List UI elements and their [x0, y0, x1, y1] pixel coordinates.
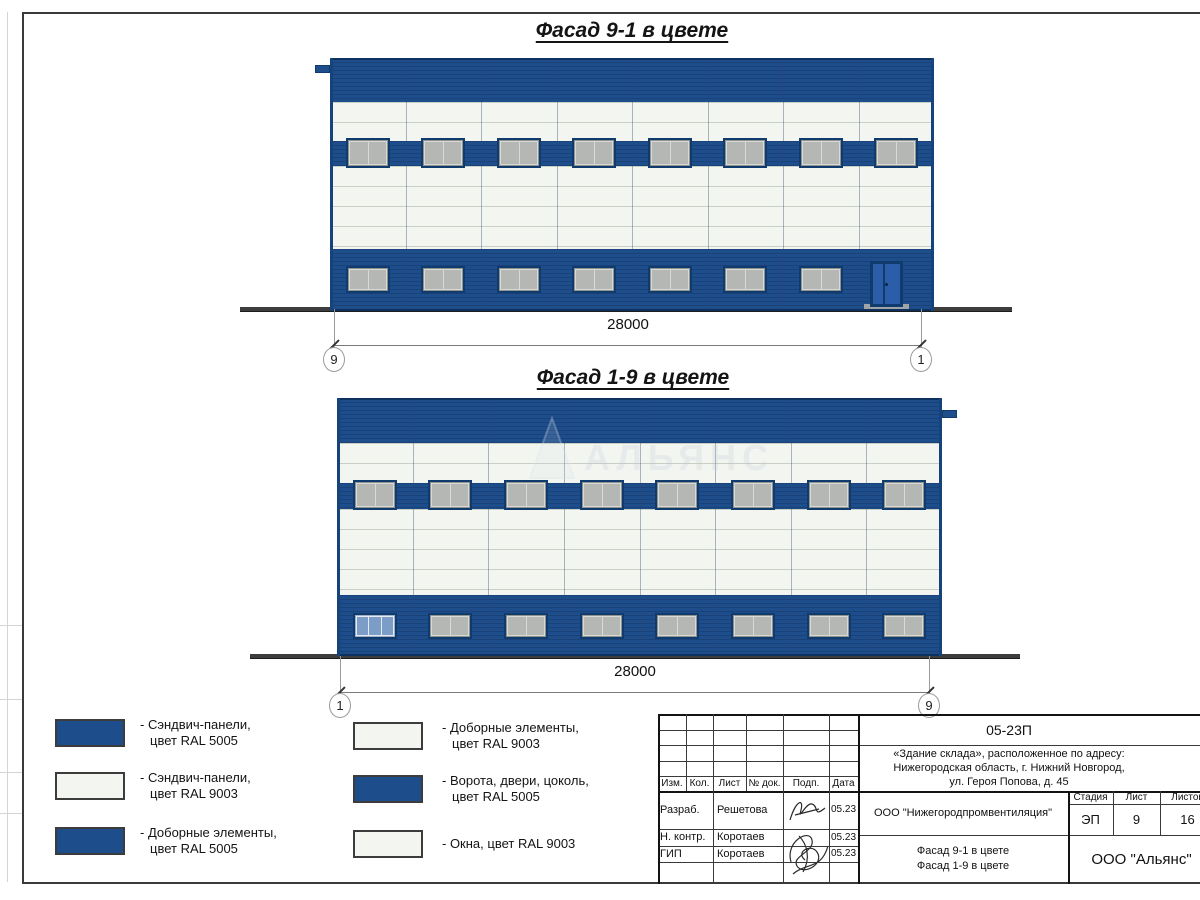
corner-edge — [330, 58, 333, 311]
window — [874, 138, 918, 168]
window-pane — [822, 270, 840, 289]
stage-value-cell: ЭП — [1068, 804, 1113, 835]
legend-label-line: - Ворота, двери, цоколь, — [442, 773, 657, 789]
window — [353, 613, 397, 639]
facade-9-1-drawing — [330, 58, 934, 311]
window-pane — [501, 142, 519, 164]
window — [580, 480, 624, 510]
window — [731, 480, 775, 510]
margin-divider — [0, 772, 22, 773]
window-pane — [746, 270, 764, 289]
window-pane — [584, 617, 602, 635]
titleblock-line — [858, 714, 860, 884]
window-pane — [671, 270, 689, 289]
margin-divider — [0, 813, 22, 814]
signature-icon — [786, 794, 828, 828]
facade1-title: Фасад 9-1 в цвете — [432, 19, 832, 43]
frame-top — [22, 12, 1200, 14]
sig-header-cell: Дата — [829, 777, 858, 791]
window-pane — [451, 484, 469, 506]
window-glazing — [574, 140, 614, 166]
window-pane — [603, 484, 621, 506]
window-pane — [905, 484, 923, 506]
titleblock-line — [783, 714, 784, 884]
window-pane — [822, 142, 840, 164]
window-pane — [576, 270, 594, 289]
window — [428, 480, 472, 510]
window-glazing — [657, 615, 697, 637]
panel-joint-line — [557, 58, 558, 311]
sig-header-cell: Лист — [713, 777, 746, 791]
window-pane — [369, 617, 380, 635]
window-pane — [803, 142, 821, 164]
window-pane — [897, 142, 915, 164]
sig-name-cell: Коротаев — [717, 829, 781, 846]
window-pane — [811, 484, 829, 506]
frame-left — [22, 12, 24, 884]
panel-joint-line — [783, 58, 784, 311]
window-pane — [754, 484, 772, 506]
titleblock-line — [658, 862, 858, 863]
window — [648, 266, 692, 293]
margin-divider — [0, 699, 22, 700]
window-glazing — [348, 268, 388, 291]
window — [807, 613, 851, 639]
panel-joint-line — [413, 398, 414, 656]
titleblock-line — [658, 730, 858, 731]
window — [723, 266, 767, 293]
legend-swatch — [55, 827, 125, 855]
window-pane — [357, 617, 368, 635]
panel-joint-line — [640, 398, 641, 656]
door-handle-icon — [885, 283, 888, 286]
window-pane — [671, 142, 689, 164]
window-pane — [369, 142, 387, 164]
window-pane — [595, 270, 613, 289]
window — [421, 138, 465, 168]
sig-role-cell: ГИП — [660, 846, 712, 862]
window — [346, 138, 390, 168]
window — [655, 613, 699, 639]
panel-joint-line — [859, 58, 860, 311]
window-pane — [369, 270, 387, 289]
window — [723, 138, 767, 168]
legend-label: - Доборные элементы,цвет RAL 5005 — [140, 826, 355, 856]
stage-value-cell: 16 — [1160, 804, 1200, 835]
axis-marker: 9 — [323, 347, 345, 372]
legend-label-line: цвет RAL 5005 — [150, 841, 355, 857]
panel-joint-line — [715, 398, 716, 656]
stage-header-cell: Лист — [1113, 792, 1160, 804]
sig-date-cell: 05.23 — [829, 791, 858, 829]
window — [655, 480, 699, 510]
window — [346, 266, 390, 293]
stage-header-cell: Листов — [1160, 792, 1200, 804]
project-address-line: «Здание склада», расположенное по адресу… — [858, 747, 1160, 761]
window-pane — [830, 484, 848, 506]
window-glazing — [423, 268, 463, 291]
window-pane — [501, 270, 519, 289]
margin-inner-line — [7, 12, 8, 882]
window-pane — [754, 617, 772, 635]
panel-joint-line — [866, 398, 867, 656]
window-pane — [659, 484, 677, 506]
window-pane — [425, 270, 443, 289]
sig-header-cell: Изм. — [658, 777, 686, 791]
window-pane — [508, 484, 526, 506]
window-pane — [811, 617, 829, 635]
window-pane — [678, 617, 696, 635]
legend-swatch — [353, 775, 423, 803]
window-pane — [425, 142, 443, 164]
window — [882, 480, 926, 510]
window-pane — [357, 484, 375, 506]
window-pane — [595, 142, 613, 164]
org-name: ООО "Нижегородпромвентиляция" — [858, 791, 1068, 835]
window-pane — [444, 270, 462, 289]
window-pane — [905, 617, 923, 635]
window-pane — [350, 142, 368, 164]
sheet-doc-title-line: Фасад 9-1 в цвете — [917, 844, 1009, 859]
facade-1-9-drawing: АЛЬЯНС — [337, 398, 942, 656]
sig-role-cell: Н. контр. — [660, 829, 712, 846]
window — [572, 138, 616, 168]
window — [731, 613, 775, 639]
window-pane — [878, 142, 896, 164]
sheet-doc-title: Фасад 9-1 в цвете Фасад 1-9 в цвете — [858, 835, 1068, 883]
window-glazing — [423, 140, 463, 166]
company-name: ООО "Альянс" — [1068, 835, 1200, 883]
dimension-line — [340, 692, 929, 693]
legend-swatch — [353, 830, 423, 858]
legend-label-line: - Окна, цвет RAL 9003 — [442, 836, 657, 852]
corner-edge — [931, 58, 934, 311]
window-pane — [746, 142, 764, 164]
legend-label: - Сэндвич-панели,цвет RAL 9003 — [140, 771, 355, 801]
legend-label-line: цвет RAL 9003 — [150, 786, 355, 802]
window-pane — [527, 617, 545, 635]
titleblock-line — [713, 714, 714, 884]
sig-name-cell: Коротаев — [717, 846, 781, 862]
window-glazing — [801, 140, 841, 166]
window-pane — [584, 484, 602, 506]
window — [807, 480, 851, 510]
window — [504, 480, 548, 510]
legend-label-line: - Доборные элементы, — [442, 720, 657, 736]
panel-joint-line — [481, 58, 482, 311]
titleblock-line — [858, 835, 1200, 836]
sheet-doc-title-line: Фасад 1-9 в цвете — [917, 859, 1009, 874]
stage-header-cell: Стадия — [1068, 792, 1113, 804]
window — [648, 138, 692, 168]
legend-label: - Доборные элементы,цвет RAL 9003 — [442, 721, 657, 751]
window — [497, 266, 541, 293]
entrance-door — [870, 261, 903, 307]
window-glazing — [355, 482, 395, 508]
titleblock-line — [658, 745, 1200, 746]
drawing-sheet: Фасад 9-1 в цвете Фасад 1-9 в цвете АЛЬЯ… — [0, 0, 1200, 900]
sig-date-cell: 05.23 — [829, 829, 858, 846]
legend-label-line: - Доборные элементы, — [140, 825, 355, 841]
legend-label-line: цвет RAL 5005 — [452, 789, 657, 805]
window-glazing — [733, 482, 773, 508]
titleblock-line — [658, 714, 1200, 716]
window-pane — [451, 617, 469, 635]
panel-joint-line — [632, 58, 633, 311]
corner-edge — [337, 398, 340, 656]
legend-label: - Ворота, двери, цоколь,цвет RAL 5005 — [442, 774, 657, 804]
window-glazing — [809, 482, 849, 508]
window-glazing — [884, 615, 924, 637]
window-glazing — [348, 140, 388, 166]
window-glazing — [725, 268, 765, 291]
window-glazing — [582, 615, 622, 637]
legend-label-line: цвет RAL 9003 — [452, 736, 657, 752]
window-pane — [735, 617, 753, 635]
window-glazing — [650, 268, 690, 291]
base-edge — [330, 309, 934, 311]
window-pane — [652, 270, 670, 289]
facade2-title: Фасад 1-9 в цвете — [433, 366, 833, 390]
window-glazing — [430, 482, 470, 508]
window-pane — [350, 270, 368, 289]
legend-label-line: цвет RAL 5005 — [150, 733, 355, 749]
window-pane — [830, 617, 848, 635]
window-glazing — [355, 615, 395, 637]
window-glazing — [809, 615, 849, 637]
sig-header-cell: Подп. — [783, 777, 829, 791]
window — [799, 266, 843, 293]
stage-value-cell: 9 — [1113, 804, 1160, 835]
axis-marker: 1 — [910, 347, 932, 372]
sig-name-cell: Решетова — [717, 791, 781, 829]
window-glazing — [650, 140, 690, 166]
window-pane — [727, 142, 745, 164]
project-address-line: ул. Героя Попова, д. 45 — [858, 775, 1160, 789]
project-address-line: Нижегородская область, г. Нижний Новгоро… — [858, 761, 1160, 775]
legend-label: - Сэндвич-панели,цвет RAL 5005 — [140, 718, 355, 748]
window-glazing — [506, 482, 546, 508]
window-glazing — [733, 615, 773, 637]
panel-joint-line — [406, 58, 407, 311]
window-pane — [727, 270, 745, 289]
window — [421, 266, 465, 293]
dimension-label: 28000 — [558, 316, 698, 333]
parapet-cap — [337, 398, 942, 400]
titleblock-line — [658, 761, 858, 762]
panel-joint-line — [564, 398, 565, 656]
window-glazing — [801, 268, 841, 291]
window-pane — [735, 484, 753, 506]
window-glazing — [876, 140, 916, 166]
window-pane — [520, 270, 538, 289]
window — [497, 138, 541, 168]
signature-icon — [781, 824, 835, 880]
window-pane — [444, 142, 462, 164]
window-pane — [603, 617, 621, 635]
legend-label-line: - Сэндвич-панели, — [140, 717, 355, 733]
gutter-tab — [315, 65, 330, 73]
window-glazing — [430, 615, 470, 637]
window — [882, 613, 926, 639]
window-pane — [803, 270, 821, 289]
window-pane — [376, 484, 394, 506]
window-pane — [432, 484, 450, 506]
window-pane — [576, 142, 594, 164]
sig-role-cell: Разраб. — [660, 791, 712, 829]
window-pane — [432, 617, 450, 635]
margin-divider — [0, 625, 22, 626]
window — [353, 480, 397, 510]
gutter-tab — [942, 410, 957, 418]
window-pane — [508, 617, 526, 635]
panel-joint-line — [488, 398, 489, 656]
window — [580, 613, 624, 639]
window-glazing — [499, 140, 539, 166]
doc-code: 05-23П — [858, 717, 1200, 743]
project-address: «Здание склада», расположенное по адресу… — [858, 747, 1200, 789]
window — [799, 138, 843, 168]
window-glazing — [574, 268, 614, 291]
parapet-cap — [330, 58, 934, 60]
panel-joint-line — [708, 58, 709, 311]
axis-marker: 1 — [329, 693, 351, 718]
dimension-label: 28000 — [565, 663, 705, 680]
window-glazing — [499, 268, 539, 291]
window-pane — [886, 484, 904, 506]
window-glazing — [725, 140, 765, 166]
window — [428, 613, 472, 639]
legend-swatch — [353, 722, 423, 750]
window-pane — [652, 142, 670, 164]
window-pane — [520, 142, 538, 164]
corner-edge — [939, 398, 942, 656]
legend-label: - Окна, цвет RAL 9003 — [442, 829, 657, 859]
base-edge — [337, 654, 942, 656]
window-pane — [527, 484, 545, 506]
window-pane — [886, 617, 904, 635]
legend-swatch — [55, 719, 125, 747]
window-pane — [382, 617, 393, 635]
legend-label-line: - Сэндвич-панели, — [140, 770, 355, 786]
window — [504, 613, 548, 639]
window-glazing — [506, 615, 546, 637]
window-pane — [659, 617, 677, 635]
window-glazing — [582, 482, 622, 508]
sig-header-cell: Кол. — [686, 777, 713, 791]
window-glazing — [884, 482, 924, 508]
dimension-line — [334, 345, 921, 346]
window-pane — [678, 484, 696, 506]
sig-date-cell: 05.23 — [829, 846, 858, 862]
sig-header-cell: № док. — [746, 777, 783, 791]
panel-joint-line — [791, 398, 792, 656]
legend-swatch — [55, 772, 125, 800]
window-glazing — [657, 482, 697, 508]
window — [572, 266, 616, 293]
